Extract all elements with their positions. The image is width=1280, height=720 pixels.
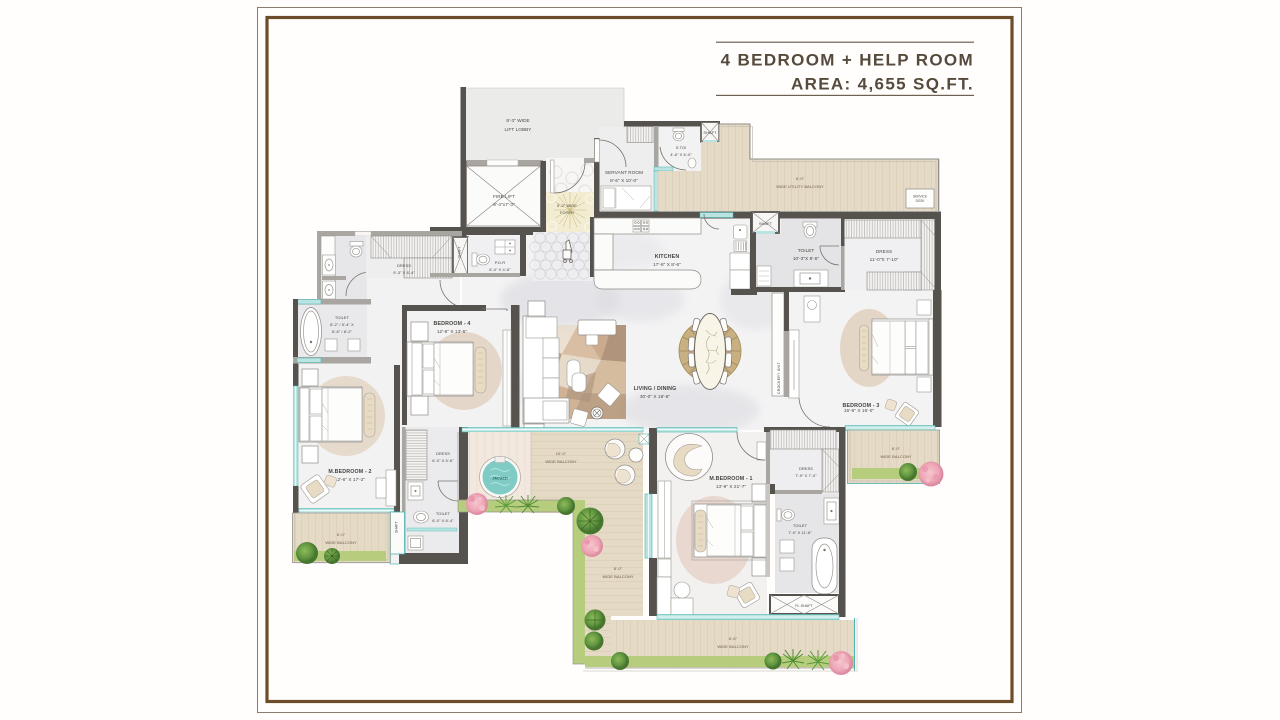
svg-text:FOYER: FOYER <box>560 210 574 215</box>
svg-text:LIVING / DINING: LIVING / DINING <box>634 386 677 392</box>
svg-text:DRESS: DRESS <box>436 451 450 456</box>
svg-text:SERVICE: SERVICE <box>913 195 927 199</box>
svg-text:DRESS: DRESS <box>397 263 411 268</box>
svg-text:16'-9" X 16'-0": 16'-9" X 16'-0" <box>844 408 875 413</box>
svg-text:SERVANT ROOM: SERVANT ROOM <box>605 170 643 175</box>
svg-text:FL.SHAFT: FL.SHAFT <box>795 604 813 608</box>
svg-text:TOILET: TOILET <box>335 315 350 320</box>
svg-text:6'-0" X 8'-4": 6'-0" X 8'-4" <box>432 518 454 523</box>
svg-text:WIDE BALCONY: WIDE BALCONY <box>602 574 634 579</box>
svg-text:13'-9" X 21'-7": 13'-9" X 21'-7" <box>716 484 747 489</box>
svg-text:7'-9" X 7'-0": 7'-9" X 7'-0" <box>795 473 817 478</box>
svg-text:6'-0": 6'-0" <box>892 446 901 451</box>
svg-text:12'-6" X 13'-6": 12'-6" X 13'-6" <box>437 329 468 334</box>
svg-text:6'-0": 6'-0" <box>337 532 346 537</box>
svg-text:P.D.R: P.D.R <box>495 260 505 265</box>
svg-text:KITCHEN: KITCHEN <box>655 254 680 260</box>
svg-text:BEDROOM - 4: BEDROOM - 4 <box>434 321 471 327</box>
svg-text:M.BEDROOM - 2: M.BEDROOM - 2 <box>328 469 371 475</box>
svg-text:WIDE UTILITY BALCONY: WIDE UTILITY BALCONY <box>776 184 824 189</box>
svg-text:JACUZZI: JACUZZI <box>492 477 507 481</box>
svg-text:6'-0": 6'-0" <box>796 176 805 181</box>
svg-text:6'-0" X 5'-6": 6'-0" X 5'-6" <box>432 458 454 463</box>
svg-text:AREA: 4,655 SQ.FT.: AREA: 4,655 SQ.FT. <box>791 75 974 94</box>
svg-text:LIFT LOBBY: LIFT LOBBY <box>505 127 533 132</box>
svg-text:8'-3" WIDE: 8'-3" WIDE <box>506 118 529 123</box>
svg-text:6'-6" / 8'-2": 6'-6" / 8'-2" <box>332 329 352 334</box>
svg-text:6'-6": 6'-6" <box>729 636 738 641</box>
svg-text:8'-2" / 5'-4" X: 8'-2" / 5'-4" X <box>330 322 354 327</box>
svg-text:CROCKERY UNIT: CROCKERY UNIT <box>777 362 781 394</box>
svg-text:WIDE BALCONY: WIDE BALCONY <box>880 454 912 459</box>
svg-text:TOILET: TOILET <box>436 511 451 516</box>
svg-text:TOILET: TOILET <box>798 248 815 253</box>
svg-text:8'-0": 8'-0" <box>614 566 623 571</box>
svg-text:6'-0" X 4'-6": 6'-0" X 4'-6" <box>489 267 511 272</box>
svg-text:4'-6" X 6'-0": 4'-6" X 6'-0" <box>670 152 692 157</box>
svg-text:DRESS: DRESS <box>799 466 813 471</box>
svg-text:FIRE LIFT: FIRE LIFT <box>493 194 515 199</box>
svg-text:5'-2" WIDE: 5'-2" WIDE <box>557 203 577 208</box>
svg-text:8'-6" X 10'-0": 8'-6" X 10'-0" <box>610 178 638 183</box>
svg-text:WIDE BALCONY: WIDE BALCONY <box>717 644 749 649</box>
svg-text:4 BEDROOM + HELP ROOM: 4 BEDROOM + HELP ROOM <box>721 51 974 70</box>
svg-text:TOILET: TOILET <box>793 523 808 528</box>
svg-text:12'-6" X 17'-2": 12'-6" X 17'-2" <box>335 477 366 482</box>
svg-text:10'-0": 10'-0" <box>556 451 567 456</box>
svg-text:8'-4"x7'-3": 8'-4"x7'-3" <box>493 202 515 207</box>
svg-text:SHAFT: SHAFT <box>395 520 399 533</box>
svg-text:S.TOI: S.TOI <box>676 145 687 150</box>
svg-text:DRESS: DRESS <box>876 249 892 254</box>
svg-text:SHAFT: SHAFT <box>458 245 462 258</box>
svg-text:WIDE BALCONY: WIDE BALCONY <box>325 540 357 545</box>
svg-text:SHAFT: SHAFT <box>703 130 717 135</box>
svg-text:9'-3" X 8'-4": 9'-3" X 8'-4" <box>393 270 415 275</box>
svg-text:7'-9" X 11'-6": 7'-9" X 11'-6" <box>788 530 812 535</box>
svg-text:DESK: DESK <box>916 199 926 203</box>
svg-text:M.BEDROOM - 1: M.BEDROOM - 1 <box>709 476 752 482</box>
svg-text:10'-3"X 8'-6": 10'-3"X 8'-6" <box>793 256 820 261</box>
svg-text:SHAFT: SHAFT <box>759 221 773 226</box>
svg-text:WIDE BALCONY: WIDE BALCONY <box>545 459 577 464</box>
svg-text:11'-0"X 7'-10": 11'-0"X 7'-10" <box>870 257 899 262</box>
svg-text:30'-0" X 19'-6": 30'-0" X 19'-6" <box>640 394 671 399</box>
svg-text:17'-8" X 8'-6": 17'-8" X 8'-6" <box>653 262 681 267</box>
